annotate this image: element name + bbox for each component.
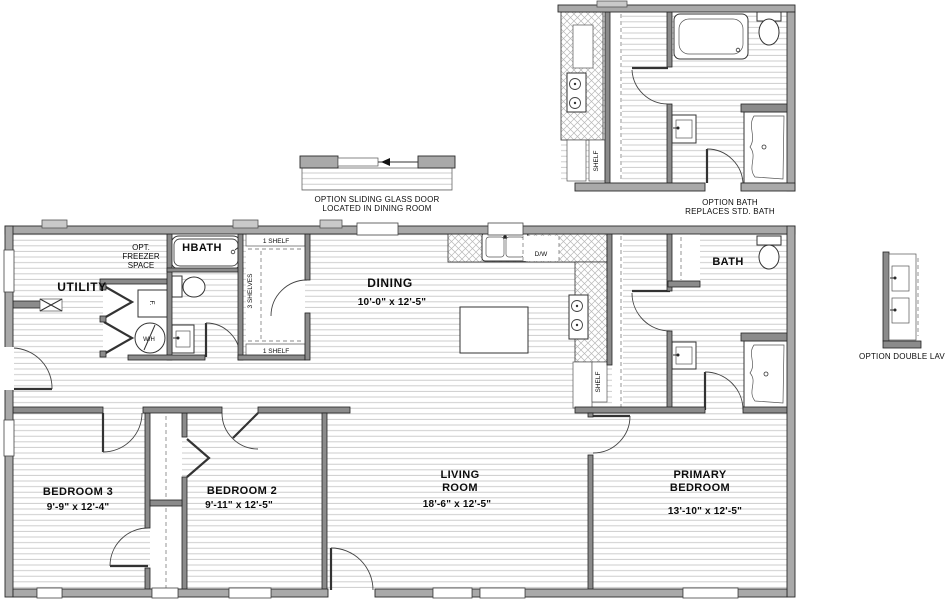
hbath-label: HBATH	[182, 242, 222, 254]
floorplan-canvas: D/W SHELF 1 SHELF 1 SHELF 3 SHELVES	[0, 0, 949, 602]
sliding-door-caption-1: OPTION SLIDING GLASS DOOR	[314, 195, 439, 204]
kitchen-sink-icon	[482, 231, 528, 261]
linen-closet-area	[246, 234, 305, 358]
dining-dims: 10'-0" x 12'-5"	[358, 297, 426, 308]
shelf-top-label: 1 SHELF	[263, 238, 289, 245]
dishwasher-label: D/W	[535, 251, 549, 258]
main-floorplan: D/W SHELF 1 SHELF 1 SHELF 3 SHELVES	[4, 220, 795, 598]
bedroom3-label: BEDROOM 3	[43, 486, 113, 498]
hbath-toilet-icon	[172, 276, 205, 297]
wall-tab	[42, 220, 67, 228]
living-label-2: ROOM	[442, 482, 478, 494]
inset-range-icon	[567, 73, 586, 112]
window-icon	[433, 588, 472, 598]
bath-toilet-icon	[757, 236, 781, 269]
primary-dims: 13'-10" x 12'-5"	[668, 506, 742, 517]
door-opening	[4, 347, 14, 390]
bath-vanity-icon	[672, 342, 696, 369]
bedroom2-label: BEDROOM 2	[207, 485, 277, 497]
option-bath-caption-1: OPTION BATH	[702, 198, 758, 207]
bath-label: BATH	[712, 256, 743, 268]
garden-tub-icon	[674, 14, 748, 59]
utility-shelf	[13, 301, 41, 308]
wall-tab	[597, 1, 627, 7]
svg-text:FREEZER: FREEZER	[122, 252, 160, 261]
primary-label-2: BEDROOM	[670, 482, 730, 494]
sliding-door-detail: OPTION SLIDING GLASS DOOR LOCATED IN DIN…	[300, 156, 455, 213]
base-cabinet-icon	[573, 362, 592, 408]
primary-label-1: PRIMARY	[673, 469, 726, 481]
dishwasher-icon: D/W	[523, 236, 559, 261]
window-icon	[488, 223, 523, 235]
inset-shelf-label: SHELF	[593, 150, 600, 171]
utility-label: UTILITY	[57, 280, 107, 294]
bedroom3-dims: 9'-9" x 12'-4"	[47, 502, 110, 513]
alcove-top-wall	[100, 279, 172, 284]
inset-shelf-cabinet: SHELF	[589, 140, 605, 181]
wall-tab	[320, 220, 342, 228]
inset-shower-icon	[741, 104, 788, 183]
wardrobe-area	[672, 234, 700, 283]
range-icon	[569, 295, 588, 339]
shelves-vertical-label: 3 SHELVES	[247, 273, 254, 309]
option-bath-inset: SHELF	[558, 1, 795, 216]
window-icon	[229, 588, 271, 598]
slide-arrow-icon	[381, 158, 390, 166]
living-dims: 18'-6" x 12'-5"	[423, 499, 491, 510]
option-bath-caption-2: REPLACES STD. BATH	[685, 207, 775, 216]
bedroom2-dims: 9'-11" x 12'-5"	[205, 500, 273, 511]
window-icon	[37, 588, 62, 598]
dining-label: DINING	[367, 276, 413, 290]
kitchen-shelf-cabinet: SHELF	[592, 362, 607, 402]
shower-icon	[741, 333, 790, 408]
window-icon	[4, 250, 14, 292]
kitchen-island-icon	[460, 307, 528, 353]
window-icon	[683, 588, 738, 598]
inset-toilet-icon	[757, 12, 781, 45]
double-lav-caption: OPTION DOUBLE LAV	[859, 352, 945, 361]
lav-sink-icon	[890, 298, 909, 323]
window-icon	[357, 223, 398, 235]
svg-text:SPACE: SPACE	[128, 261, 155, 270]
window-icon	[480, 588, 525, 598]
lav-sink-icon	[890, 266, 909, 291]
svg-text:OPT.: OPT.	[132, 243, 150, 252]
dryer-hookup-icon	[40, 299, 62, 311]
kitchen-shelf-label: SHELF	[595, 371, 602, 392]
inset-cabinet-icon	[567, 140, 586, 181]
wall-tab	[233, 220, 258, 228]
water-heater-label: W/H	[143, 337, 155, 343]
double-lav-detail: OPTION DOUBLE LAV	[859, 252, 945, 361]
living-label-1: LIVING	[440, 469, 479, 481]
floorplan-drawing: D/W SHELF 1 SHELF 1 SHELF 3 SHELVES	[0, 0, 949, 602]
sliding-door-caption-2: LOCATED IN DINING ROOM	[322, 204, 431, 213]
window-icon	[152, 588, 178, 598]
freezer-icon: F.	[138, 290, 168, 317]
shelf-bottom-label: 1 SHELF	[263, 348, 289, 355]
inset-vanity-icon	[672, 115, 696, 143]
freezer-label: F.	[148, 300, 155, 305]
water-heater-icon: W/H	[135, 323, 165, 353]
hbath-sink-icon	[172, 325, 194, 353]
window-icon	[4, 420, 14, 456]
sliding-panel-icon	[338, 158, 378, 166]
